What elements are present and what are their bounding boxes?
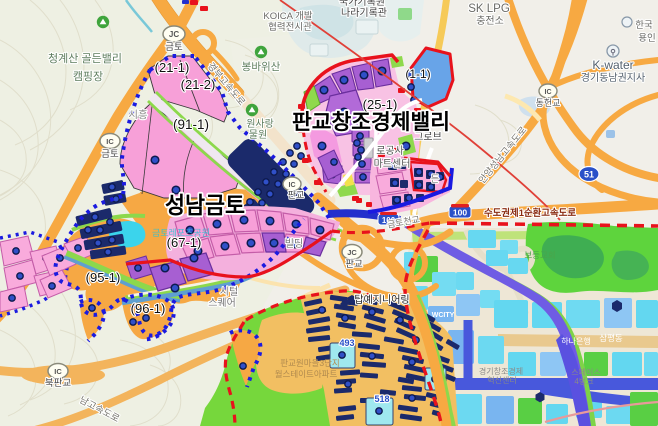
svg-text:판교: 판교 [288,190,305,200]
svg-text:원사랑: 원사랑 [246,118,274,130]
svg-text:충전소: 충전소 [476,15,504,27]
svg-text:⚲: ⚲ [610,48,616,57]
svg-text:금토: 금토 [165,42,183,53]
svg-text:시털: 시털 [220,286,238,298]
svg-text:(25-1): (25-1) [363,97,398,112]
svg-text:스퀘어: 스퀘어 [208,297,236,309]
svg-text:혁신센터: 혁신센터 [487,375,516,385]
svg-text:IC: IC [289,182,296,189]
svg-text:나라기록관: 나라기록관 [341,7,387,19]
svg-text:수도권제1순환고속도로: 수도권제1순환고속도로 [484,207,576,219]
svg-text:봉바위산: 봉바위산 [242,60,281,73]
svg-text:JC: JC [169,30,179,39]
svg-text:경기창조경제: 경기창조경제 [479,366,523,376]
svg-text:(1-1): (1-1) [405,67,430,81]
svg-text:K-water: K-water [592,58,633,72]
svg-text:국가기록원: 국가기록원 [339,0,385,8]
svg-text:(67-1): (67-1) [167,235,202,250]
svg-text:캠핑장: 캠핑장 [73,70,103,83]
svg-text:금토: 금토 [101,149,119,160]
svg-text:북판교: 북판교 [45,378,71,389]
svg-text:청계산 골든밸리: 청계산 골든밸리 [48,52,122,65]
svg-text:로공사: 로공사 [376,145,404,157]
svg-text:스페이스: 스페이스 [571,367,600,377]
svg-text:JC: JC [347,248,357,257]
svg-text:협력전시관: 협력전시관 [268,21,312,33]
svg-text:한국: 한국 [635,20,653,31]
svg-text:(95-1): (95-1) [86,270,121,285]
svg-text:보등교회: 보등교회 [524,250,555,260]
svg-text:KOICA 개발: KOICA 개발 [263,11,312,22]
svg-text:판교창조경제밸리: 판교창조경제밸리 [292,111,450,134]
svg-text:4벙크: 4벙크 [574,376,593,386]
svg-text:판교: 판교 [345,259,363,270]
svg-text:IC: IC [54,367,62,376]
svg-text:든: 든 [431,174,439,184]
svg-text:삼평동: 삼평동 [599,333,623,343]
svg-text:경기동남권지사: 경기동남권지사 [581,71,645,84]
svg-text:판교원마을3단지: 판교원마을3단지 [280,358,339,368]
svg-text:용인: 용인 [638,33,655,44]
svg-text:WCITY: WCITY [432,312,455,319]
svg-text:성남금토: 성남금토 [165,192,245,218]
svg-text:(21-1): (21-1) [155,60,190,75]
svg-text:518: 518 [374,394,389,404]
svg-text:(96-1): (96-1) [131,301,166,316]
svg-text:빌딩: 빌딩 [285,238,303,250]
svg-text:마트센터: 마트센터 [374,158,411,170]
svg-text:탑예지니어링: 탑예지니어링 [354,294,409,306]
svg-text:IC: IC [106,137,114,146]
svg-text:시흥: 시흥 [128,108,148,121]
svg-text:(21-2): (21-2) [181,77,216,92]
svg-text:(91-1): (91-1) [173,117,209,132]
svg-text:하나은행: 하나은행 [561,336,590,346]
svg-text:51: 51 [584,170,594,180]
svg-text:월스테이트아파트: 월스테이트아파트 [275,369,338,379]
svg-text:물원: 물원 [249,129,267,141]
svg-text:동헌교: 동헌교 [536,98,561,108]
svg-text:493: 493 [339,338,354,348]
svg-text:SK LPG: SK LPG [468,3,510,15]
svg-text:IC: IC [545,89,552,96]
svg-text:100: 100 [453,208,467,218]
